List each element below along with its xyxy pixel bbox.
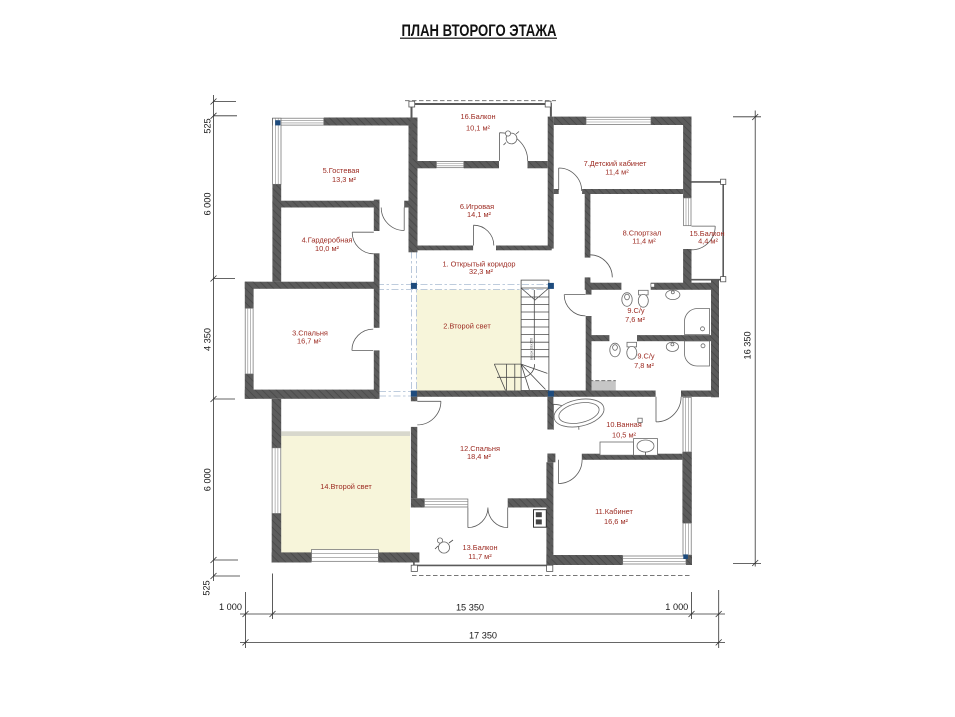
svg-text:вверх 18х150: вверх 18х150	[530, 338, 534, 360]
svg-text:18,4 м²: 18,4 м²	[467, 452, 492, 461]
svg-text:6 000: 6 000	[203, 193, 213, 216]
svg-text:10,0 м²: 10,0 м²	[315, 244, 340, 253]
svg-text:4 350: 4 350	[203, 328, 213, 351]
svg-text:17 350: 17 350	[469, 631, 497, 641]
svg-text:7,6 м²: 7,6 м²	[625, 315, 645, 324]
svg-text:14.Второй свет: 14.Второй свет	[320, 482, 372, 491]
svg-text:10,5 м²: 10,5 м²	[612, 431, 637, 440]
svg-text:13,3 м²: 13,3 м²	[332, 175, 357, 184]
svg-text:11,4 м²: 11,4 м²	[632, 237, 656, 246]
svg-text:1 000: 1 000	[665, 602, 688, 612]
svg-text:525: 525	[203, 118, 213, 133]
svg-text:15 350: 15 350	[456, 603, 484, 613]
svg-text:6 000: 6 000	[203, 468, 213, 491]
svg-text:5.Гостевая: 5.Гостевая	[323, 166, 360, 175]
svg-text:11,4 м²: 11,4 м²	[605, 168, 629, 177]
svg-text:13.Балкон: 13.Балкон	[462, 543, 497, 552]
svg-text:9.С/у: 9.С/у	[637, 352, 655, 361]
svg-text:4,4 м²: 4,4 м²	[698, 237, 718, 246]
svg-text:2.Второй свет: 2.Второй свет	[443, 322, 491, 331]
svg-text:525: 525	[202, 580, 212, 595]
svg-text:11.Кабинет: 11.Кабинет	[595, 507, 633, 516]
svg-text:16 350: 16 350	[743, 331, 753, 359]
svg-text:10,1 м²: 10,1 м²	[466, 124, 491, 133]
svg-text:7,8 м²: 7,8 м²	[634, 361, 654, 370]
svg-text:16,6 м²: 16,6 м²	[604, 517, 629, 526]
svg-text:14,1 м²: 14,1 м²	[467, 210, 492, 219]
svg-text:9.С/у: 9.С/у	[627, 306, 645, 315]
svg-text:16,7 м²: 16,7 м²	[297, 337, 322, 346]
svg-text:10.Ванная: 10.Ванная	[606, 420, 642, 429]
svg-text:16.Балкон: 16.Балкон	[460, 112, 495, 121]
svg-text:11,7 м²: 11,7 м²	[468, 552, 492, 561]
svg-text:32,3 м²: 32,3 м²	[469, 267, 494, 276]
svg-text:1 000: 1 000	[219, 602, 242, 612]
svg-text:ПЛАН ВТОРОГО ЭТАЖА: ПЛАН ВТОРОГО ЭТАЖА	[402, 21, 557, 40]
